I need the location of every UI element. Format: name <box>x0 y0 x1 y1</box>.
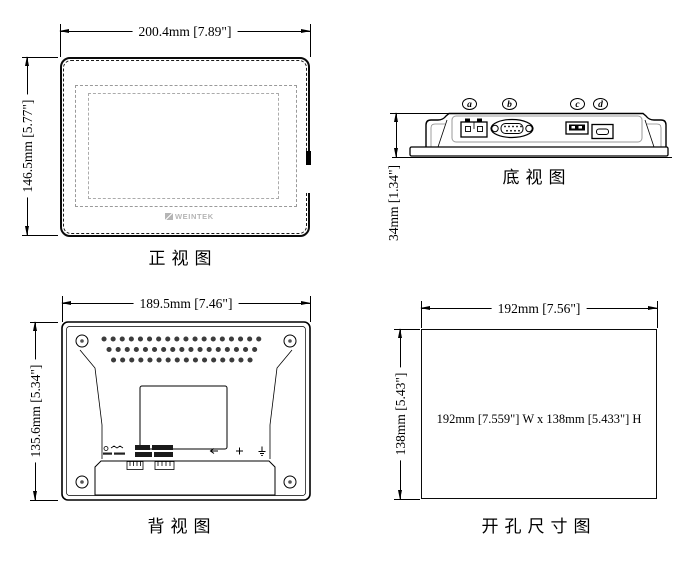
arrowhead-right <box>301 29 311 33</box>
cutout-width-dimension: 192mm [7.56"] <box>421 308 657 309</box>
vent-holes <box>104 339 266 360</box>
front-width-dimension: 200.4mm [7.89"] <box>60 31 310 32</box>
ear-inner-left <box>431 124 445 147</box>
rear-width-dimension-text: 189.5mm [7.46"] <box>134 296 239 312</box>
front-height-dimension: 146.5mm [5.77"] <box>27 57 28 235</box>
arrowhead-down <box>398 490 402 500</box>
arrowhead-left <box>420 306 430 310</box>
port-label-a: a <box>462 98 477 110</box>
front-display-area-outline <box>88 93 279 199</box>
rear-view-caption: 背视图 <box>122 512 242 537</box>
tray-connector-tabs <box>127 462 174 470</box>
rear-outer-edge <box>62 322 310 500</box>
cutout-width-dimension-text: 192mm [7.56"] <box>492 301 587 317</box>
front-bezel-bar <box>410 147 668 156</box>
serial-db9-connector <box>491 120 533 138</box>
usb-a-connector <box>566 122 588 134</box>
arrowhead-up <box>394 112 398 122</box>
brand-logo-icon <box>165 213 173 220</box>
front-height-dimension-text: 146.5mm [5.77"] <box>20 95 36 198</box>
brand-logo-text: WEINTEK <box>175 212 214 221</box>
bottom-view-outline-drawing <box>383 98 688 162</box>
arrowhead-left <box>59 29 69 33</box>
mold-line-left <box>80 350 102 459</box>
arrowhead-down <box>33 491 37 501</box>
power-terminal-connector <box>461 119 487 138</box>
rear-height-dimension-text: 135.6mm [5.34"] <box>28 360 44 463</box>
cutout-size-note: 192mm [7.559"] W x 138mm [5.433"] H <box>437 412 642 427</box>
arrowhead-left <box>61 301 71 305</box>
center-recess <box>140 386 227 449</box>
ear-inner-right <box>647 124 661 147</box>
cutout-height-dimension: 138mm [5.43"] <box>400 329 401 499</box>
rear-height-dimension: 135.6mm [5.34"] <box>35 322 36 500</box>
bottom-thickness-dimension-text: 34mm [1.34"] <box>386 165 402 241</box>
port-label-c: c <box>570 98 585 110</box>
rear-view-outline-drawing <box>55 315 320 510</box>
usb-mini-connector <box>592 125 613 139</box>
side-slot-gap <box>303 164 314 193</box>
technical-drawing: 200.4mm [7.89"] 146.5mm [5.77"] WEINTEK … <box>0 0 688 567</box>
cutout-height-dimension-text: 138mm [5.43"] <box>393 368 409 461</box>
extension-line <box>390 113 449 114</box>
front-width-dimension-text: 200.4mm [7.89"] <box>133 24 238 40</box>
mold-line-right <box>270 350 292 459</box>
cutout-view-caption: 开孔尺寸图 <box>459 512 619 537</box>
brand-logo: WEINTEK <box>165 212 214 221</box>
port-label-d: d <box>593 98 608 110</box>
cutout-rectangle: 192mm [7.559"] W x 138mm [5.433"] H <box>421 329 657 499</box>
port-label-b: b <box>502 98 517 110</box>
rear-inner-edge <box>67 327 306 496</box>
arrowhead-down <box>394 148 398 158</box>
arrowhead-up <box>33 321 37 331</box>
bottom-view-caption: 底视图 <box>487 163 587 188</box>
arrowhead-right <box>301 301 311 305</box>
bottom-thickness-dimension <box>396 113 397 157</box>
rear-print-marks <box>103 445 266 457</box>
arrowhead-right <box>648 306 658 310</box>
side-slot-tab <box>306 151 311 165</box>
arrowhead-up <box>25 56 29 66</box>
arrowhead-up <box>398 328 402 338</box>
front-view-caption: 正视图 <box>123 244 243 269</box>
arrowhead-down <box>25 226 29 236</box>
rear-width-dimension: 189.5mm [7.46"] <box>62 303 310 304</box>
bottom-recess-tray <box>95 461 275 495</box>
